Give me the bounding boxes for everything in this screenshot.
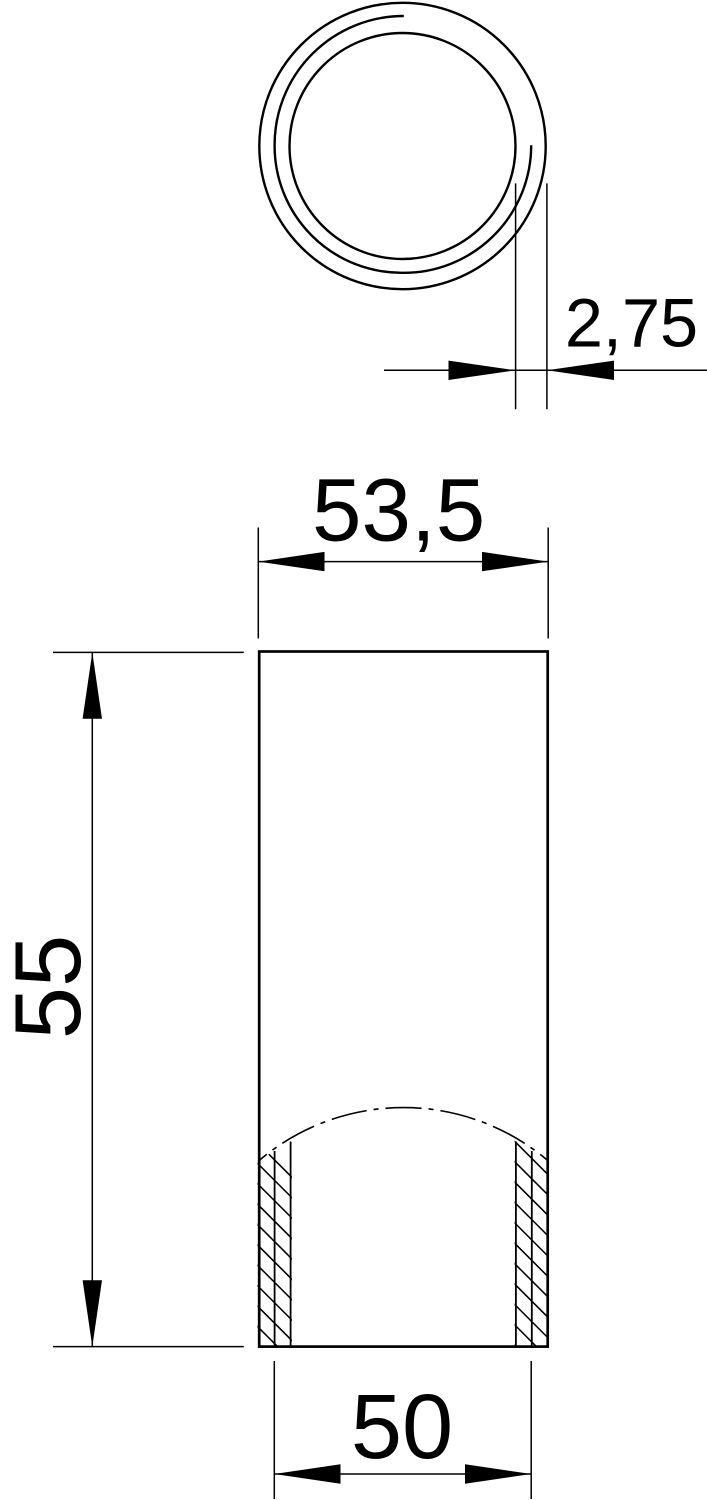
svg-text:50: 50 (351, 1376, 453, 1478)
svg-text:55: 55 (0, 935, 100, 1040)
svg-text:2,75: 2,75 (565, 284, 698, 361)
svg-text:53,5: 53,5 (312, 460, 485, 560)
